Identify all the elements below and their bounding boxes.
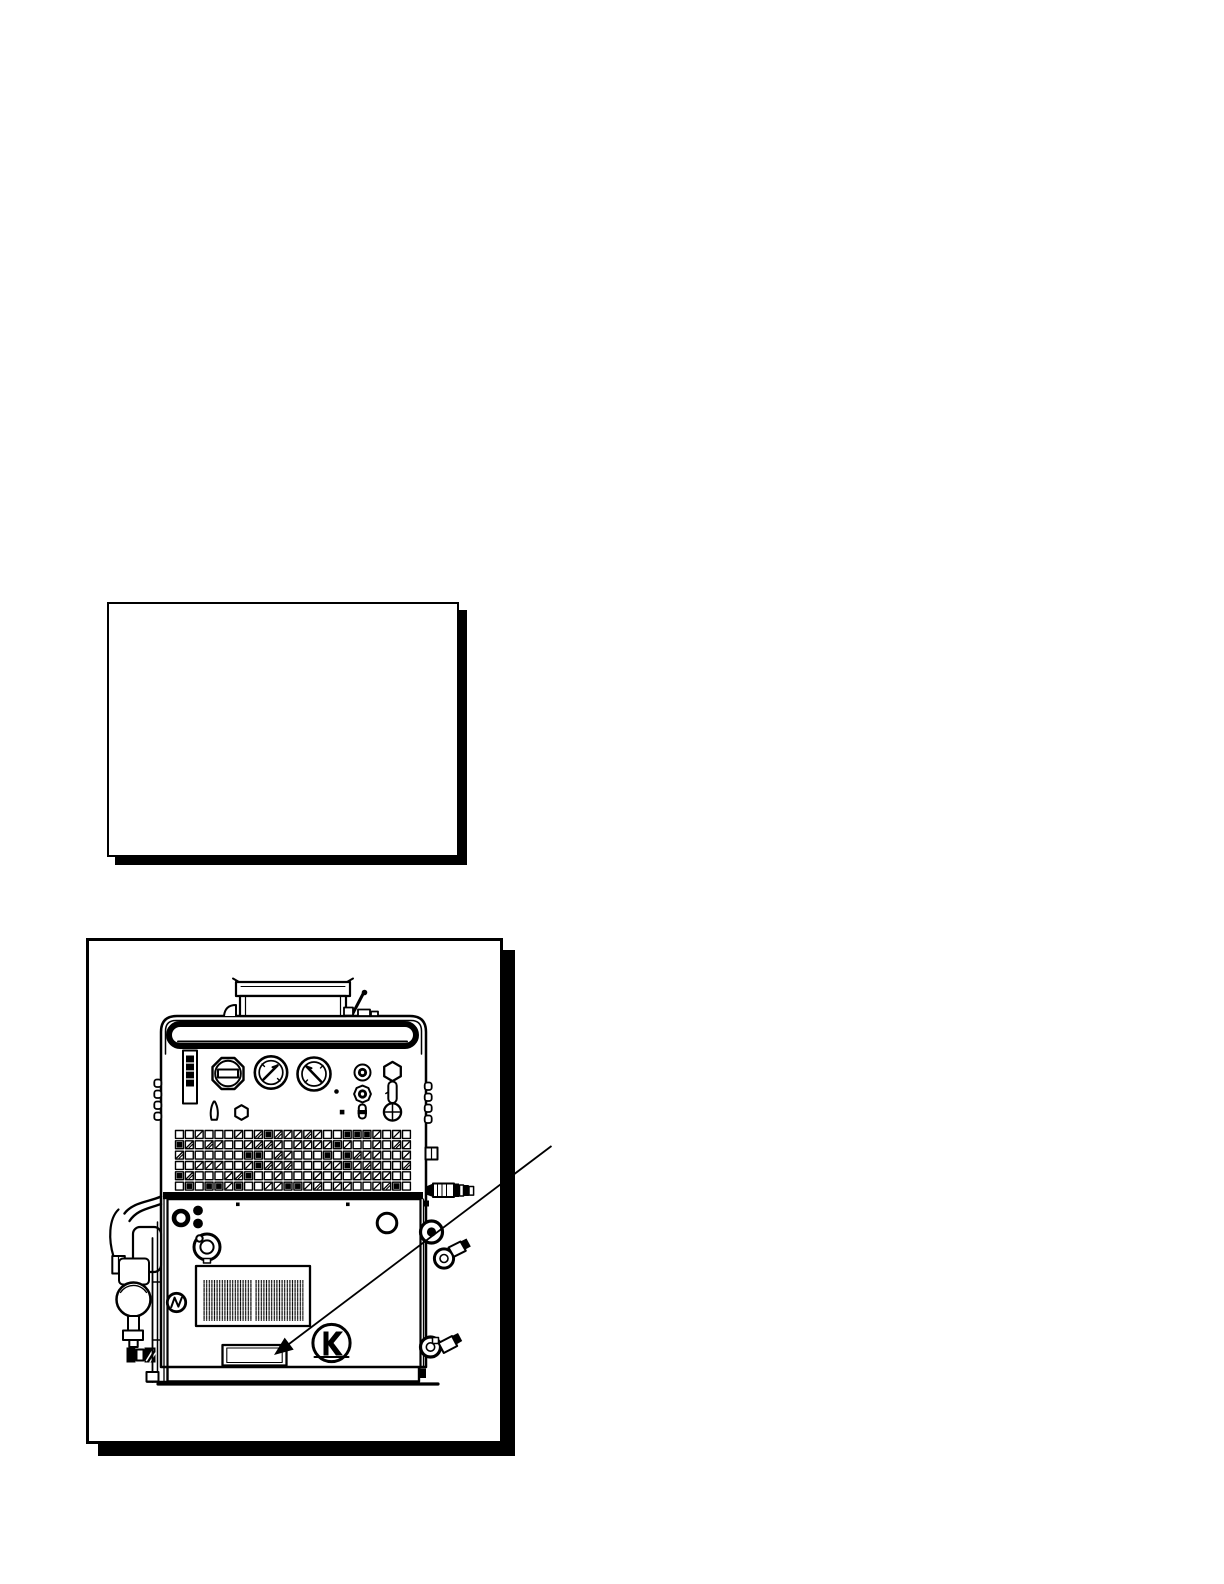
figure-framed-panel [86, 938, 503, 1444]
left-gauge-icon [255, 1056, 287, 1088]
manual-page [0, 0, 1224, 1584]
welder-illustration [89, 941, 500, 1441]
engine-badge-icon [313, 1324, 350, 1361]
fuel-cap-icon [213, 1058, 244, 1089]
nameplate-icon [223, 1345, 287, 1366]
lift-handle-icon [169, 1024, 416, 1046]
right-connectors-icon [421, 1148, 474, 1358]
lower-panel-icon [164, 1199, 424, 1382]
empty-framed-panel [107, 602, 459, 857]
muffler-housing-icon [224, 979, 378, 1017]
choke-emblem-icon [167, 1293, 185, 1311]
skid-base-icon [147, 1367, 439, 1384]
control-label-icon [183, 1051, 197, 1104]
vent-grille-icon [196, 1266, 310, 1326]
left-plumbing-icon [110, 1197, 161, 1383]
right-gauge-icon [298, 1058, 331, 1091]
